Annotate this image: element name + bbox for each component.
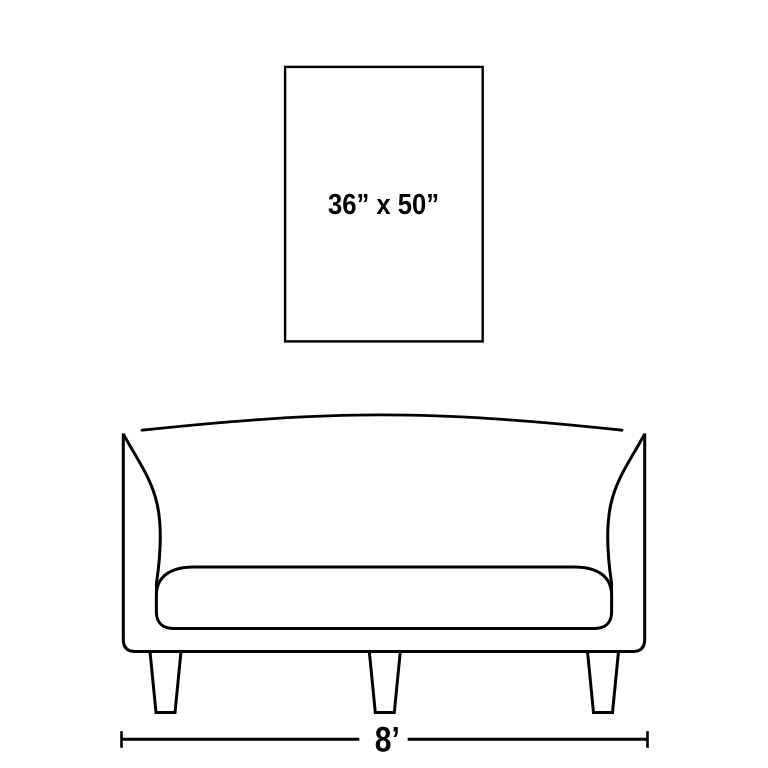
svg-text:8’: 8’ bbox=[375, 720, 400, 760]
svg-text:36” x 50”: 36” x 50” bbox=[328, 189, 439, 221]
